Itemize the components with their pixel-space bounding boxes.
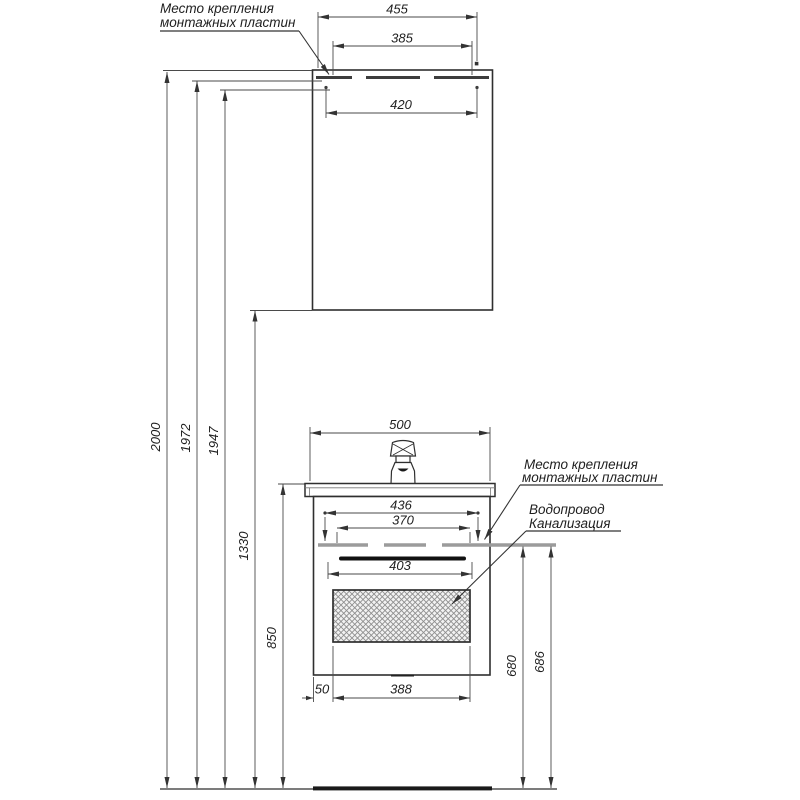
floor-line bbox=[160, 786, 557, 790]
dim-1972: 1972 bbox=[178, 423, 193, 453]
sewerage-label: Канализация bbox=[529, 516, 610, 531]
faucet bbox=[391, 441, 416, 485]
mount-top-label-line1: Место крепления bbox=[160, 1, 274, 16]
technical-drawing: 455 385 420 Место крепления монтажных пл… bbox=[0, 0, 800, 800]
dim-370: 370 bbox=[392, 513, 414, 528]
water-supply-label: Водопровод bbox=[529, 502, 605, 517]
technical-drawing-page: 455 385 420 Место крепления монтажных пл… bbox=[0, 0, 800, 800]
dim-2000: 2000 bbox=[148, 422, 163, 453]
dim-420: 420 bbox=[390, 97, 412, 112]
dim-403: 403 bbox=[389, 558, 411, 573]
mount-right-label-line2: монтажных пластин bbox=[522, 470, 658, 485]
dim-686: 686 bbox=[532, 650, 547, 672]
mount-gap bbox=[368, 543, 384, 548]
mounting-plates-label-top: Место крепления монтажных пластин bbox=[160, 1, 329, 75]
mount-top-label-line2: монтажных пластин bbox=[160, 15, 296, 30]
dim-1330: 1330 bbox=[236, 531, 251, 561]
dim-455: 455 bbox=[386, 2, 408, 17]
dim-850: 850 bbox=[264, 626, 279, 648]
sink bbox=[305, 484, 495, 497]
dim-385: 385 bbox=[391, 31, 413, 46]
pipes-connection-zone bbox=[333, 590, 470, 642]
dim-1947: 1947 bbox=[206, 426, 221, 456]
dim-50: 50 bbox=[315, 682, 330, 697]
right-dimensions: 680 686 bbox=[504, 547, 551, 789]
leader-line bbox=[299, 31, 329, 75]
dim-680: 680 bbox=[504, 654, 519, 676]
dim-388: 388 bbox=[390, 682, 412, 697]
dim-top-mount: 385 bbox=[333, 31, 472, 76]
dim-500: 500 bbox=[389, 417, 411, 432]
dim-436: 436 bbox=[390, 498, 412, 513]
mount-gap bbox=[352, 75, 366, 79]
floor-thick-segment bbox=[313, 786, 492, 790]
left-dimensions: 2000 1972 1947 1330 850 bbox=[148, 71, 330, 789]
mount-gap bbox=[420, 75, 434, 79]
mount-gap bbox=[426, 543, 442, 548]
